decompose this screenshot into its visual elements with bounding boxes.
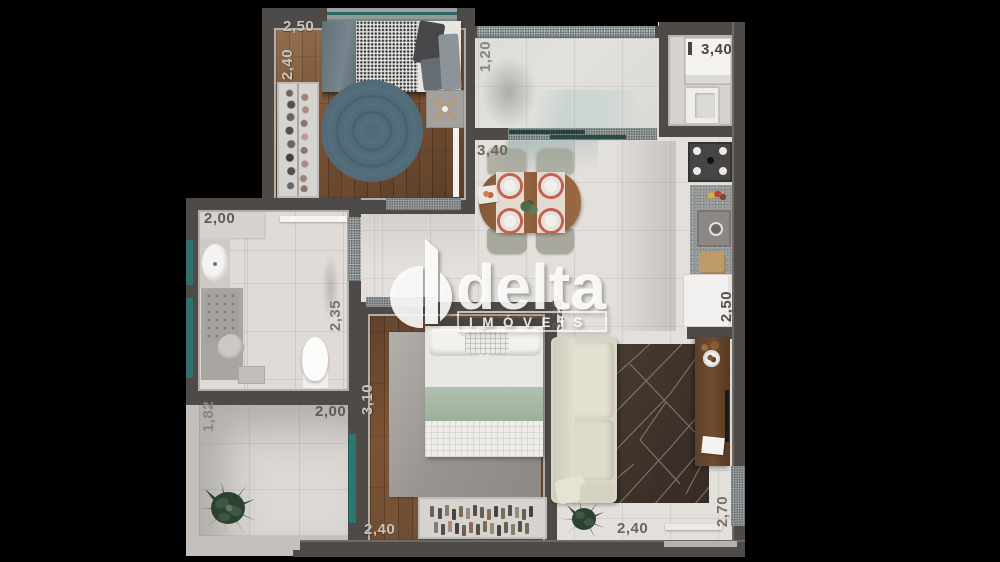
svg-text:IMÓVEIS: IMÓVEIS [469,315,592,330]
